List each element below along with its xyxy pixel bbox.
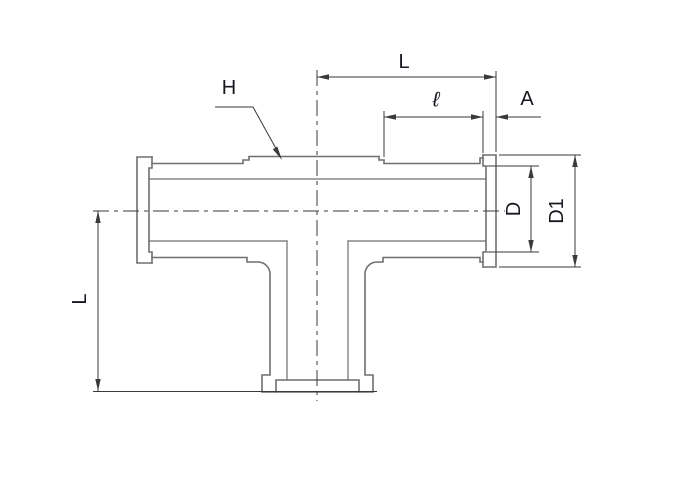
- arrowhead-ell-right: [471, 114, 483, 119]
- dim-label-ell: ℓ: [433, 90, 440, 111]
- arrowhead-D1-bottom: [572, 255, 577, 267]
- left-flange-face: [149, 157, 152, 263]
- callout-label-H: H: [222, 78, 236, 98]
- arrowhead-D-bottom: [528, 240, 533, 252]
- technical-drawing-canvas: L ℓ A H L D D1: [0, 0, 694, 489]
- arrowhead-L-top-right: [484, 74, 496, 79]
- dim-label-A: A: [520, 89, 533, 109]
- arrowhead-D1-top: [572, 155, 577, 167]
- leader-line-H: [215, 107, 279, 154]
- dim-label-D1: D1: [547, 198, 567, 224]
- dim-label-D: D: [504, 202, 524, 216]
- arrowhead-H-leader: [273, 147, 282, 161]
- dimension-lines: [93, 71, 581, 392]
- arrowhead-L-left-bottom: [95, 379, 100, 391]
- arrowhead-A: [496, 114, 508, 119]
- arrowhead-D-top: [528, 166, 533, 178]
- arrowhead-L-top-left: [317, 74, 329, 79]
- arrowhead-ell-left: [384, 114, 396, 119]
- arrowhead-L-left-top: [95, 211, 100, 223]
- tee-fitting-line-art: [0, 0, 694, 489]
- dim-label-L-top: L: [398, 52, 409, 72]
- dim-label-L-left: L: [70, 293, 90, 304]
- centerlines: [93, 70, 505, 401]
